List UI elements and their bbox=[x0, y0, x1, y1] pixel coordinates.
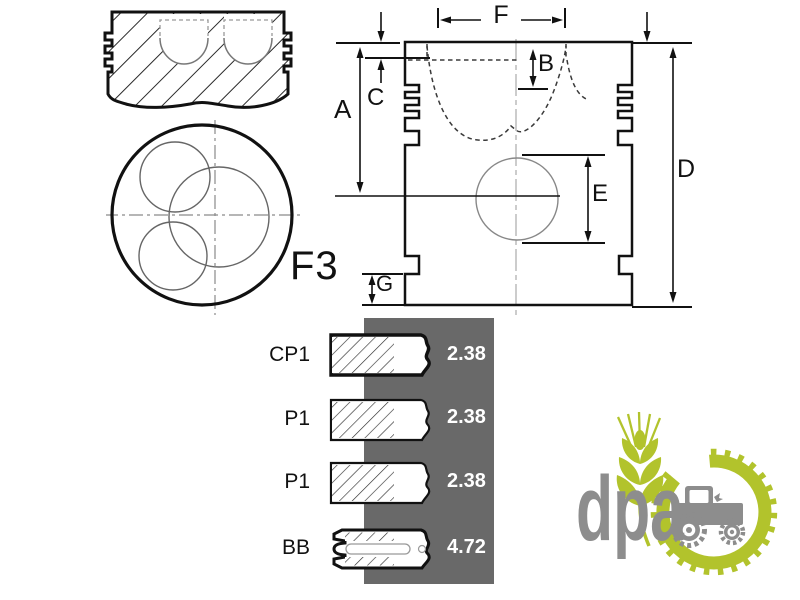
dim-label-c: C bbox=[367, 86, 384, 110]
piston-top-view bbox=[106, 120, 301, 315]
ring-label-p1: P1 bbox=[258, 470, 310, 494]
ring-value: 2.38 bbox=[447, 406, 499, 429]
hidden-bowl-outline bbox=[408, 44, 589, 140]
ring-section-cp1 bbox=[331, 335, 429, 375]
combustion-bowl-circle bbox=[169, 167, 269, 267]
dim-label-g: G bbox=[376, 273, 393, 295]
ring-value: 4.72 bbox=[447, 536, 499, 559]
ring-section-bb bbox=[334, 530, 429, 568]
valve-pocket-circle bbox=[139, 222, 207, 290]
dim-label-e: E bbox=[592, 182, 608, 206]
logo-text: dpa bbox=[576, 456, 684, 560]
dim-label-d: D bbox=[677, 157, 695, 182]
ring-label-bb: BB bbox=[258, 536, 310, 560]
ring-section-p1 bbox=[331, 463, 429, 503]
dpa-logo: dpa bbox=[572, 402, 794, 596]
view-label-f3: F3 bbox=[290, 244, 339, 289]
ring-cross-sections bbox=[326, 326, 442, 574]
ring-section-p1 bbox=[331, 400, 429, 440]
dim-label-f: F bbox=[486, 3, 516, 28]
valve-pocket-circle bbox=[140, 142, 210, 212]
piston-outline bbox=[405, 42, 632, 305]
pin-bore-circle bbox=[476, 158, 558, 240]
crown-section-view bbox=[98, 8, 298, 114]
dim-label-a: A bbox=[334, 96, 351, 122]
dim-label-b: B bbox=[538, 52, 554, 76]
ring-value: 2.38 bbox=[447, 470, 499, 493]
ring-value: 2.38 bbox=[447, 343, 499, 366]
piston-technical-drawing: F3 bbox=[0, 0, 800, 600]
ring-label-p1: P1 bbox=[258, 407, 310, 431]
ring-label-cp1: CP1 bbox=[258, 343, 310, 367]
